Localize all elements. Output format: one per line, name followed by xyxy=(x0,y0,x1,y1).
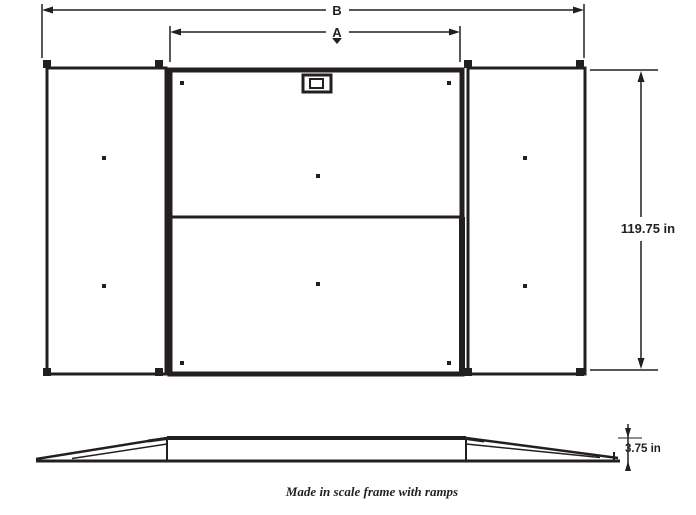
dim-height-arrow-up-icon xyxy=(625,461,631,471)
dim-depth-label: 119.75 in xyxy=(621,221,675,236)
right-ramp-top-view xyxy=(464,60,585,376)
dim-b-arrow-left-icon xyxy=(42,7,53,14)
dim-height-arrow-down-icon xyxy=(625,428,631,438)
platform-center-bolt xyxy=(316,282,320,286)
scale-frame-drawing: B A xyxy=(0,0,696,515)
side-view-right-ramp-slope xyxy=(466,438,618,458)
junction-box-inner xyxy=(310,79,323,88)
dimension-line-b: B xyxy=(42,3,584,58)
left-ramp-corner-plate xyxy=(43,60,51,68)
right-ramp-corner-plate xyxy=(576,60,584,68)
dim-a-arrow-left-icon xyxy=(170,29,181,36)
platform-top-view xyxy=(170,70,462,374)
dim-a-label: A xyxy=(332,25,342,40)
left-ramp-corner-plate xyxy=(43,368,51,376)
platform-corner-bolt xyxy=(180,81,184,85)
dim-depth-arrow-bottom-icon xyxy=(638,358,645,369)
dimension-line-height: 3.75 in xyxy=(618,424,661,471)
dimension-line-depth: 119.75 in xyxy=(590,70,675,370)
dim-a-tick-icon xyxy=(332,38,342,44)
left-ramp-bolt-hole xyxy=(102,284,106,288)
side-view-left-ramp-slope xyxy=(36,438,167,459)
drawing-svg: B A xyxy=(0,0,696,515)
dimension-line-a: A xyxy=(170,25,460,62)
platform-outline xyxy=(170,70,462,374)
junction-box-bracket xyxy=(303,75,331,92)
dim-b-label: B xyxy=(332,3,341,18)
dim-height-label: 3.75 in xyxy=(625,443,661,455)
side-view-profile xyxy=(36,438,620,461)
right-ramp-outline xyxy=(468,68,585,374)
platform-corner-bolt xyxy=(447,81,451,85)
left-ramp-bolt-hole xyxy=(102,156,106,160)
drawing-caption: Made in scale frame with ramps xyxy=(285,484,458,499)
platform-corner-bolt xyxy=(180,361,184,365)
side-view-left-junction xyxy=(148,439,167,442)
right-ramp-corner-plate xyxy=(576,368,584,376)
left-ramp-corner-plate xyxy=(155,60,163,68)
platform-center-bolt xyxy=(316,174,320,178)
platform-corner-bolt xyxy=(447,361,451,365)
dim-a-arrow-right-icon xyxy=(449,29,460,36)
left-ramp-top-view xyxy=(43,60,166,376)
dim-depth-arrow-top-icon xyxy=(638,71,645,82)
left-ramp-corner-plate xyxy=(155,368,163,376)
left-ramp-outline xyxy=(47,68,166,374)
right-ramp-bolt-hole xyxy=(523,156,527,160)
right-ramp-corner-plate xyxy=(464,368,472,376)
right-ramp-bolt-hole xyxy=(523,284,527,288)
right-ramp-corner-plate xyxy=(464,60,472,68)
dim-b-arrow-right-icon xyxy=(573,7,584,14)
